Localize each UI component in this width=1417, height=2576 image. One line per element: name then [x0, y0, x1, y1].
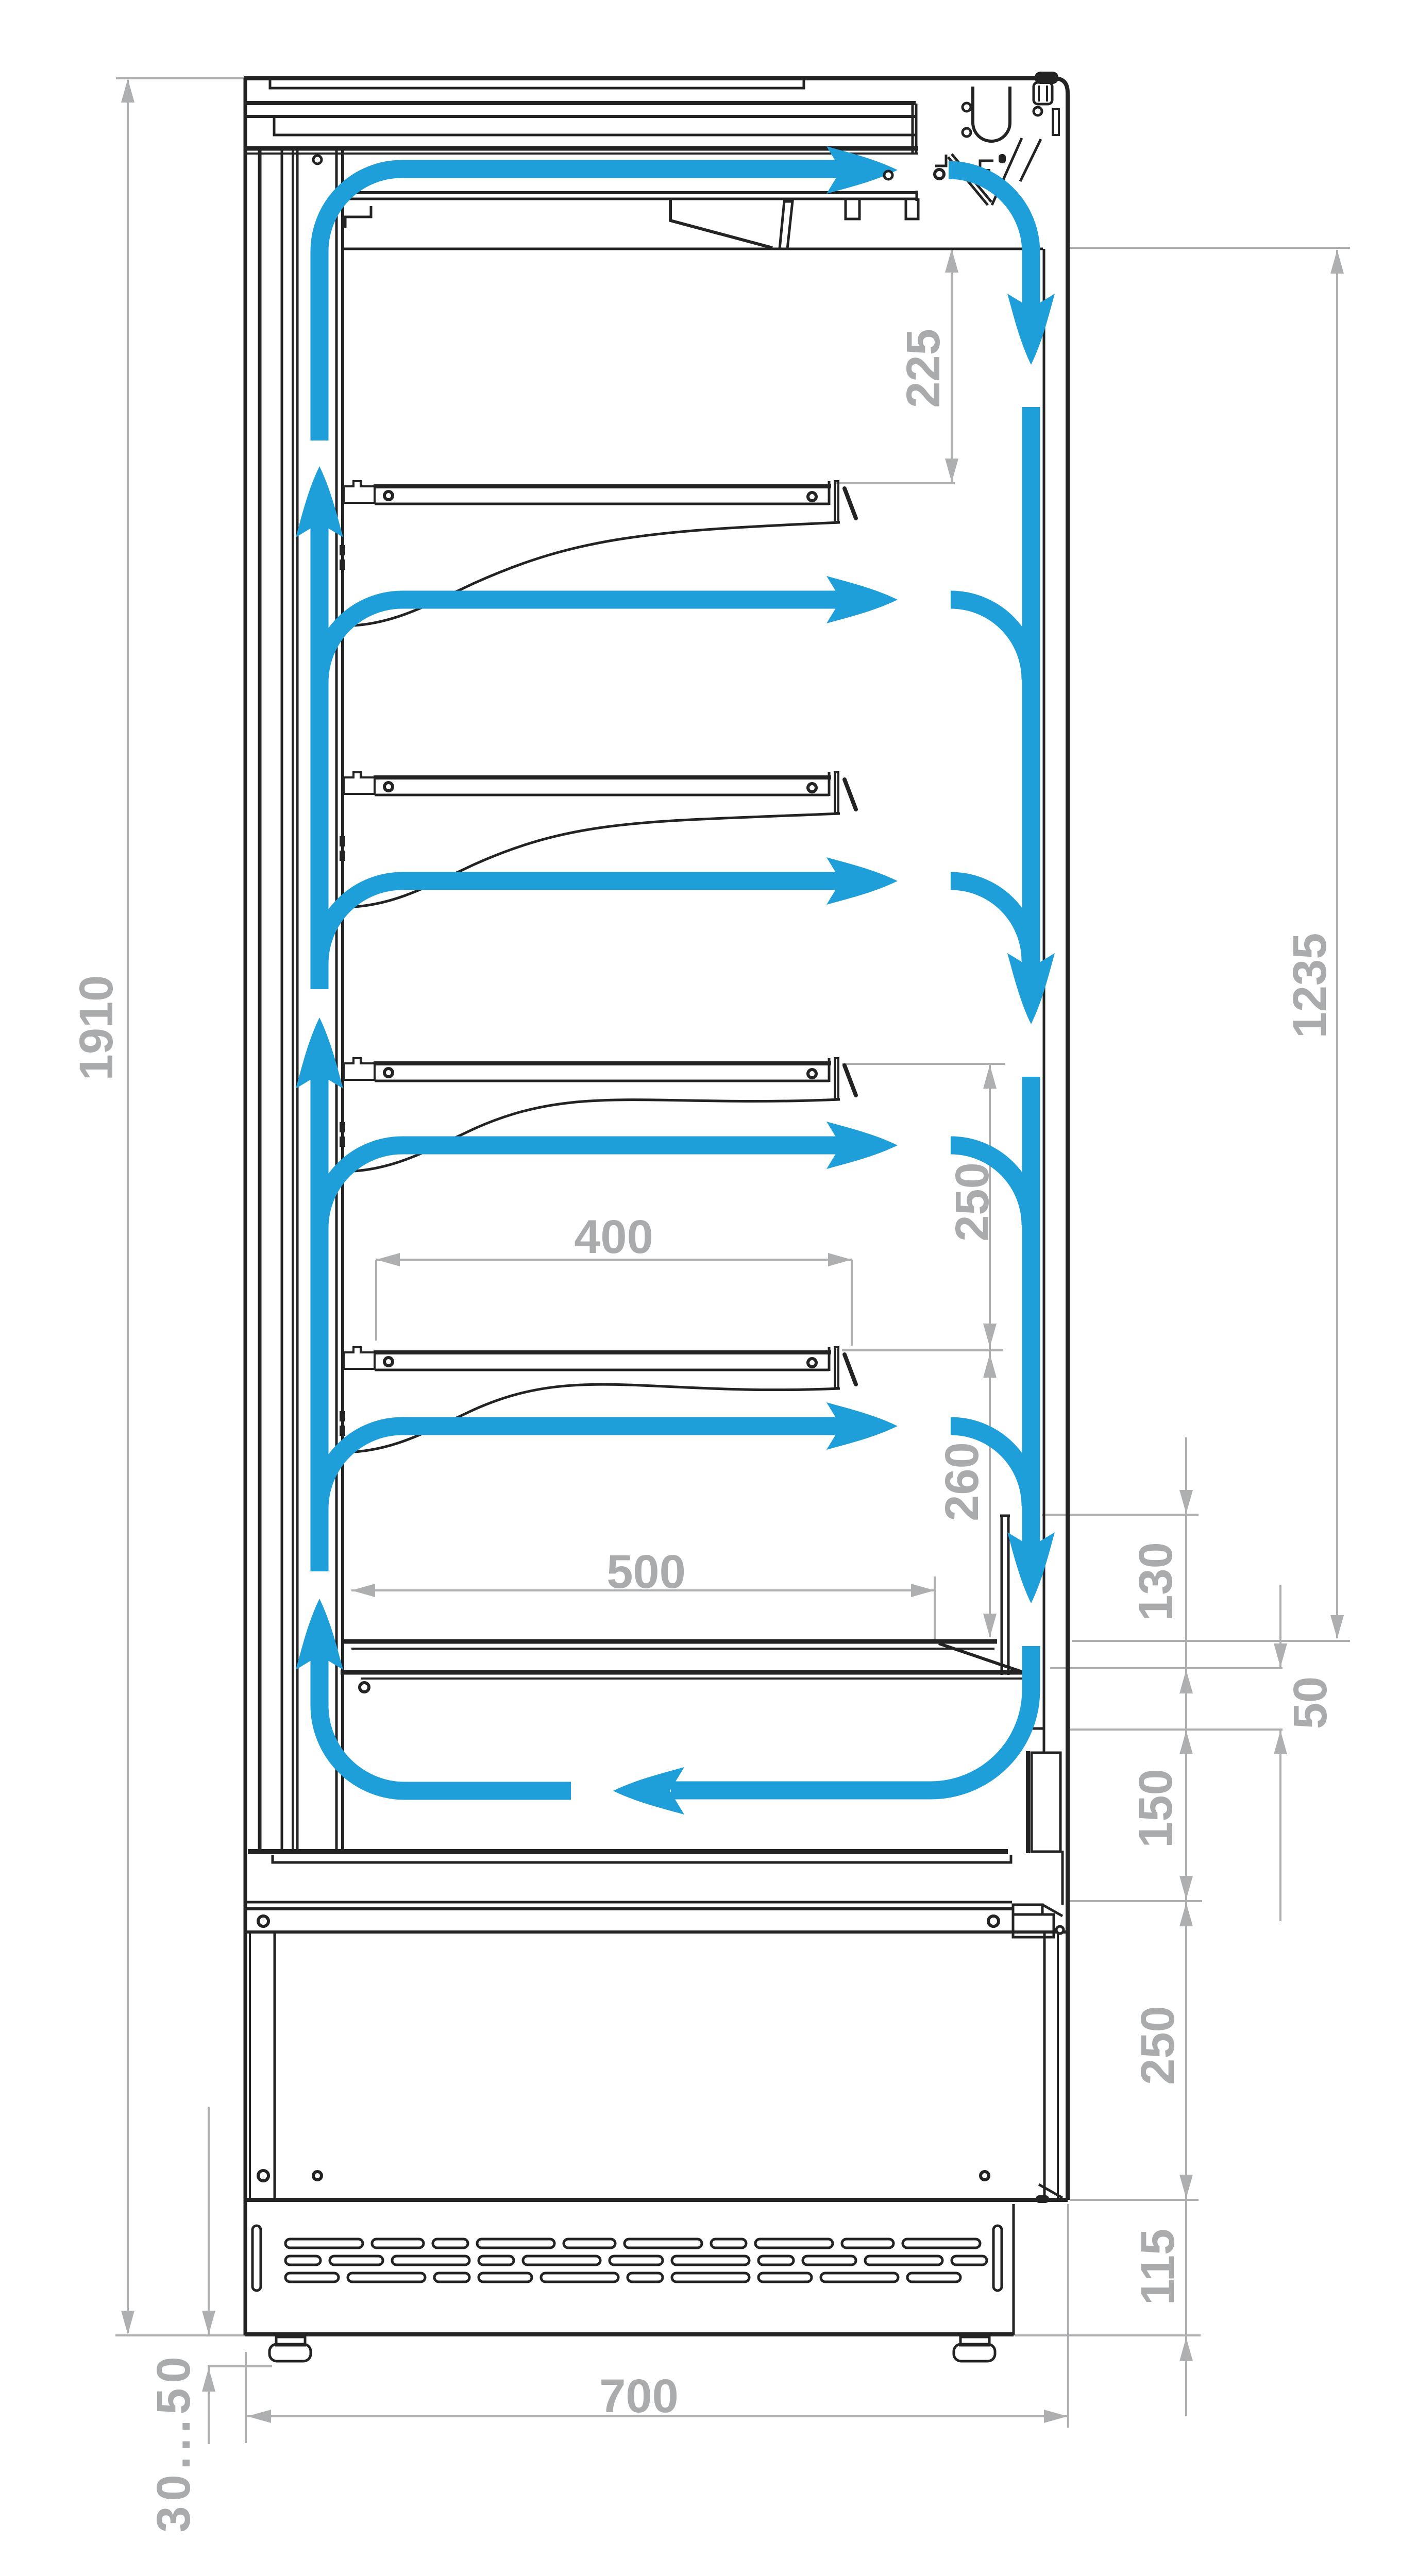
- svg-text:225: 225: [897, 329, 950, 408]
- svg-text:250: 250: [1132, 2006, 1184, 2085]
- svg-text:400: 400: [574, 1211, 653, 1263]
- svg-text:500: 500: [606, 1546, 686, 1598]
- svg-text:1235: 1235: [1284, 933, 1336, 1039]
- svg-text:50: 50: [1284, 1676, 1337, 1729]
- svg-text:700: 700: [599, 2370, 679, 2422]
- svg-text:150: 150: [1129, 1769, 1182, 1848]
- svg-text:30...50: 30...50: [147, 2351, 200, 2532]
- svg-text:1910: 1910: [70, 975, 123, 1081]
- svg-text:130: 130: [1129, 1542, 1182, 1621]
- svg-text:260: 260: [936, 1442, 988, 1521]
- svg-text:115: 115: [1132, 2229, 1184, 2305]
- svg-text:250: 250: [946, 1162, 999, 1242]
